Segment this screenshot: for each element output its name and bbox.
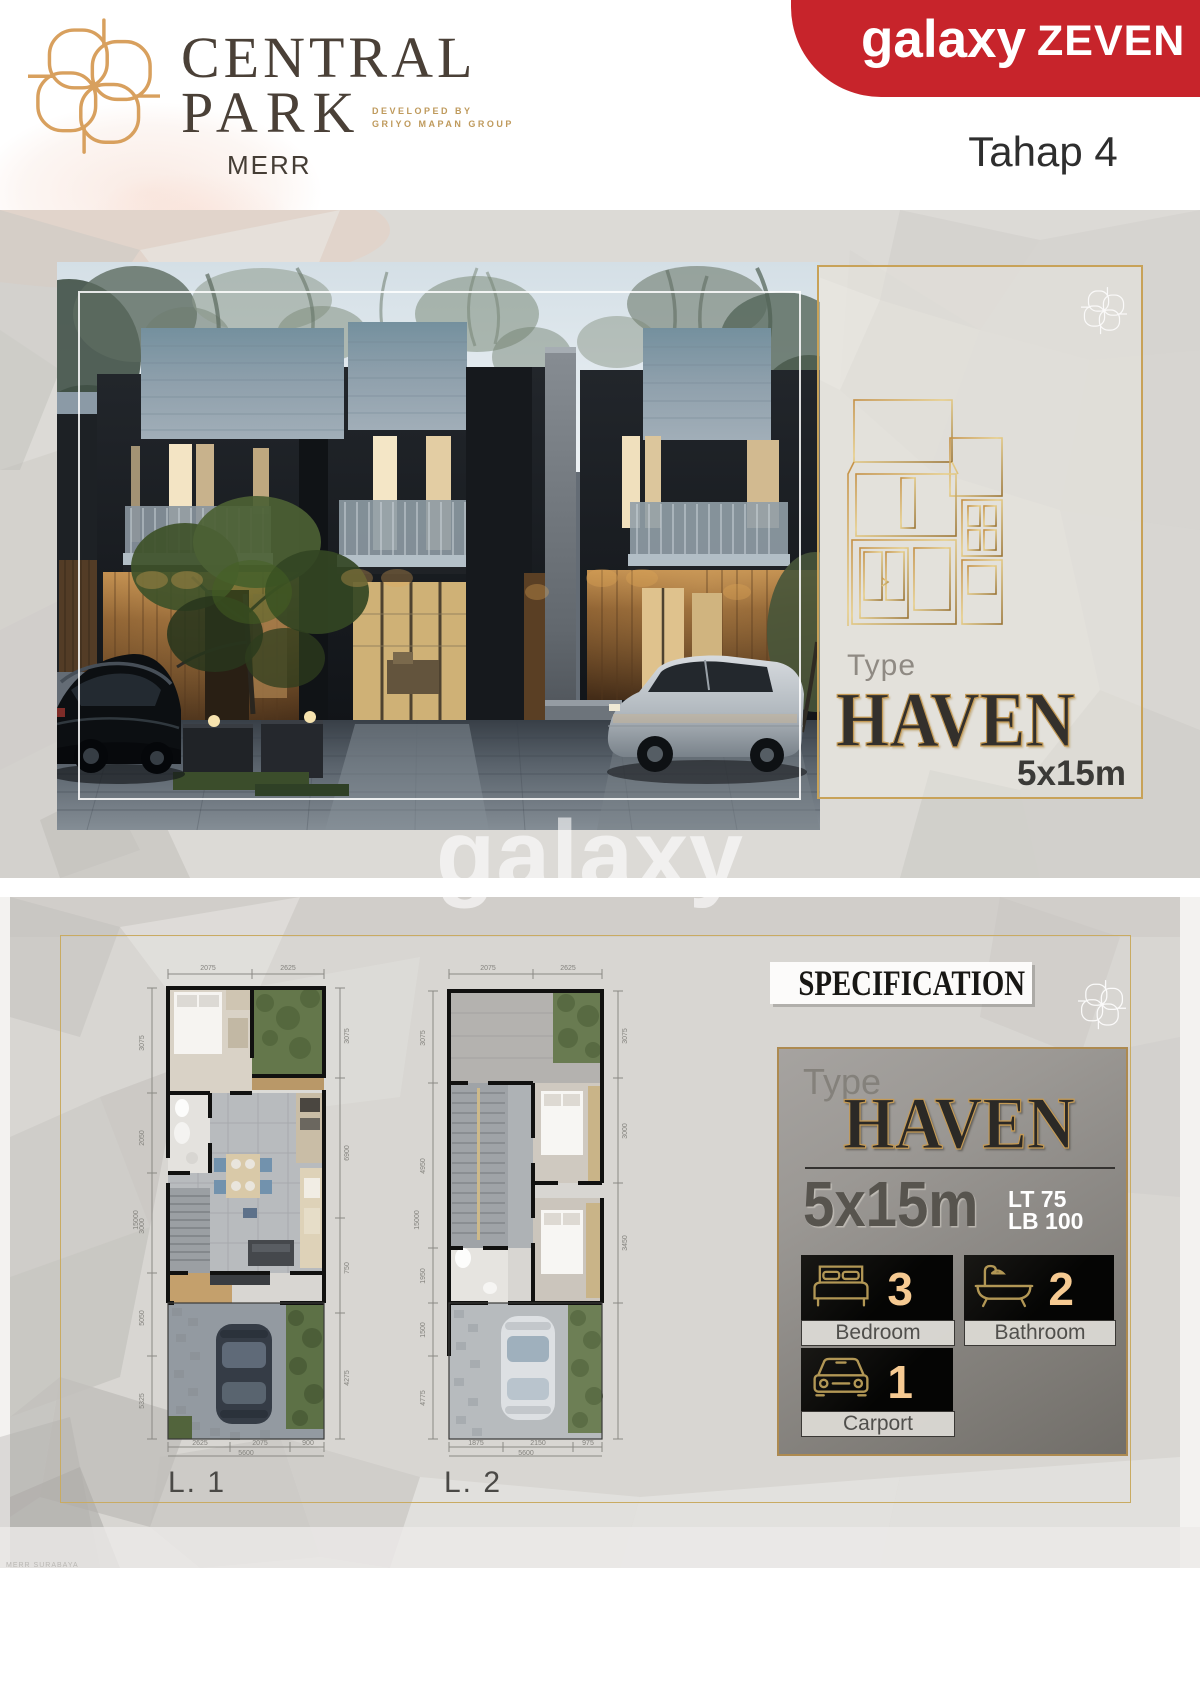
svg-text:2075: 2075	[252, 1440, 268, 1447]
svg-text:15000: 15000	[414, 1210, 421, 1230]
svg-text:4275: 4275	[344, 1370, 351, 1386]
svg-text:3000: 3000	[139, 1218, 146, 1234]
svg-text:5600: 5600	[238, 1450, 254, 1457]
svg-text:2050: 2050	[139, 1130, 146, 1146]
svg-text:3075: 3075	[344, 1028, 351, 1044]
svg-text:15000: 15000	[133, 1210, 140, 1230]
svg-text:2150: 2150	[530, 1440, 546, 1447]
svg-text:4775: 4775	[420, 1390, 427, 1406]
svg-text:3075: 3075	[139, 1035, 146, 1051]
svg-text:2625: 2625	[560, 965, 576, 972]
svg-text:750: 750	[344, 1262, 351, 1274]
svg-text:4950: 4950	[420, 1158, 427, 1174]
svg-text:3450: 3450	[622, 1235, 629, 1251]
svg-text:2625: 2625	[280, 965, 296, 972]
svg-text:1500: 1500	[420, 1322, 427, 1338]
svg-text:5325: 5325	[139, 1393, 146, 1409]
svg-text:2625: 2625	[192, 1440, 208, 1447]
svg-text:1950: 1950	[420, 1268, 427, 1284]
svg-text:5600: 5600	[518, 1450, 534, 1457]
svg-text:2075: 2075	[480, 965, 496, 972]
svg-text:5050: 5050	[139, 1310, 146, 1326]
svg-text:3075: 3075	[420, 1030, 427, 1046]
svg-text:1875: 1875	[468, 1440, 484, 1447]
svg-text:2075: 2075	[200, 965, 216, 972]
svg-text:975: 975	[582, 1440, 594, 1447]
svg-text:3075: 3075	[622, 1028, 629, 1044]
svg-text:6900: 6900	[344, 1145, 351, 1161]
svg-text:3000: 3000	[622, 1123, 629, 1139]
svg-text:900: 900	[302, 1440, 314, 1447]
